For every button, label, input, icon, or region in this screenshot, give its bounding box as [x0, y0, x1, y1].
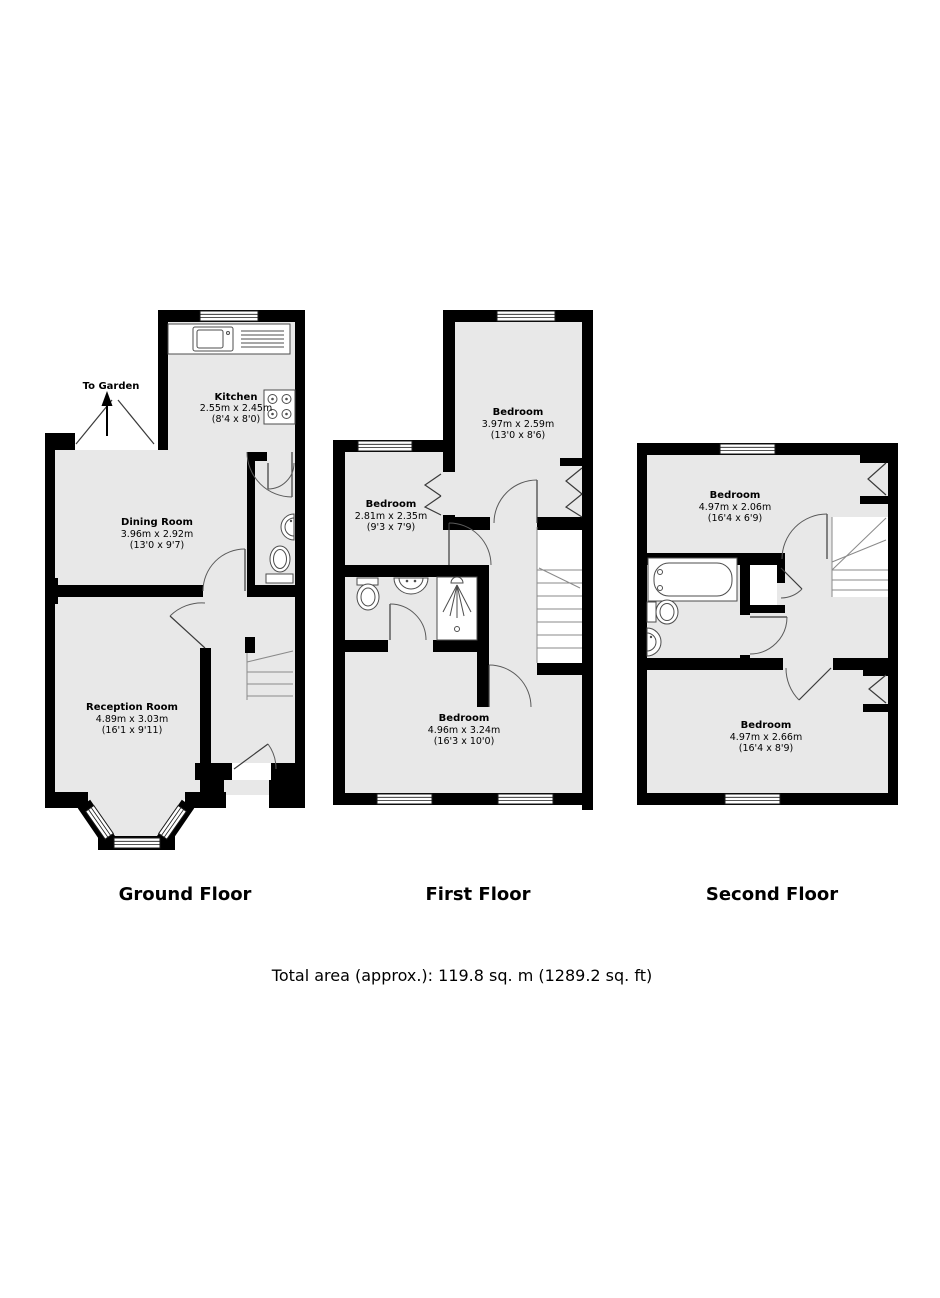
floorplan-drawing: Kitchen 2.55m x 2.45m (8'4 x 8'0) Dining… [0, 0, 940, 1298]
sf-bedroom1-label: Bedroom [710, 490, 761, 501]
dining-room-label: Dining Room [121, 517, 193, 528]
bathroom-toilet-icon [357, 578, 379, 610]
first-floor-rear-window-right [498, 794, 553, 804]
first-floor-caption: First Floor [425, 884, 530, 905]
second-floor-rear-window [725, 794, 780, 804]
dining-room-imperial: (13'0 x 9'7) [130, 540, 185, 551]
sf-toilet-icon [647, 600, 678, 624]
ff-bedroom3-metric: 4.96m x 3.24m [428, 725, 500, 736]
ground-floor-plan: Kitchen 2.55m x 2.45m (8'4 x 8'0) Dining… [45, 310, 305, 850]
garden-arrow-icon [102, 391, 113, 436]
ff-bedroom2-label: Bedroom [366, 499, 417, 510]
reception-room-label: Reception Room [86, 702, 178, 713]
second-floor-plan: Bedroom 4.97m x 2.06m (16'4 x 6'9) Bedro… [637, 443, 898, 805]
sf-bedroom1-metric: 4.97m x 2.06m [699, 502, 771, 513]
ff-bedroom3-imperial: (16'3 x 10'0) [434, 736, 495, 747]
reception-room-metric: 4.89m x 3.03m [96, 714, 168, 725]
ff-bedroom2-metric: 2.81m x 2.35m [355, 511, 427, 522]
sf-bedroom2-label: Bedroom [741, 720, 792, 731]
total-area-caption: Total area (approx.): 119.8 sq. m (1289.… [271, 966, 652, 985]
bathtub-icon [648, 558, 737, 601]
to-garden-label: To Garden [83, 381, 140, 392]
sf-bedroom2-imperial: (16'4 x 8'9) [739, 743, 794, 754]
kitchen-imperial: (8'4 x 8'0) [212, 414, 260, 425]
ff-bedroom1-metric: 3.97m x 2.59m [482, 419, 554, 430]
sf-bedroom2-metric: 4.97m x 2.66m [730, 732, 802, 743]
sf-bedroom1-imperial: (16'4 x 6'9) [708, 513, 763, 524]
first-floor-front-window [497, 311, 555, 321]
second-floor-caption: Second Floor [706, 884, 838, 905]
kitchen-metric: 2.55m x 2.45m [200, 403, 272, 414]
kitchen-sink-icon [168, 324, 290, 354]
second-floor-front-window [720, 444, 775, 454]
garden-double-doors [76, 400, 154, 444]
ff-bedroom1-imperial: (13'0 x 8'6) [491, 430, 546, 441]
ff-bedroom2-imperial: (9'3 x 7'9) [367, 522, 415, 533]
first-floor-side-window [358, 441, 412, 451]
dining-room-metric: 3.96m x 2.92m [121, 529, 193, 540]
ground-floor-caption: Ground Floor [119, 884, 252, 905]
kitchen-label: Kitchen [215, 392, 258, 403]
kitchen-window [200, 311, 258, 321]
ff-bedroom3-label: Bedroom [439, 713, 490, 724]
first-floor-plan: Bedroom 3.97m x 2.59m (13'0 x 8'6) Bedro… [333, 310, 593, 810]
ff-bedroom1-label: Bedroom [493, 407, 544, 418]
shower-icon [437, 577, 477, 640]
ground-floor-fill [55, 322, 295, 840]
reception-room-imperial: (16'1 x 9'11) [102, 725, 163, 736]
first-floor-rear-window-left [377, 794, 432, 804]
floorplan-page: Kitchen 2.55m x 2.45m (8'4 x 8'0) Dining… [0, 0, 940, 1298]
